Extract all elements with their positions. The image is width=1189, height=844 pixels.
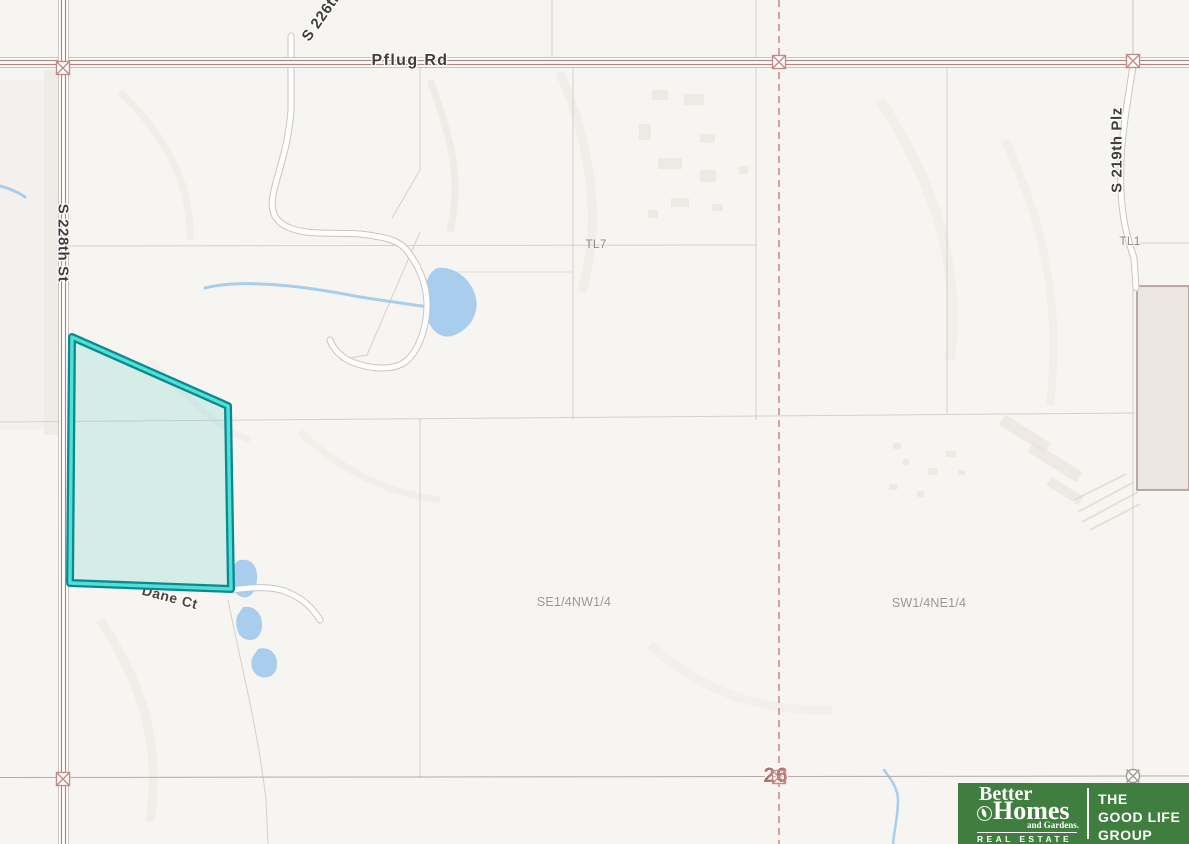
quarter-section-label-sw: SW1/4NE1/4 [892, 596, 966, 610]
quarter-section-label-se: SE1/4NW1/4 [537, 595, 611, 609]
map-canvas[interactable]: Dane Ct 26 Pflug Rd S 228th St S 226th S… [0, 0, 1189, 844]
bhg-real-estate-text: REAL ESTATE [977, 834, 1072, 844]
tagline-line-3: GROUP [1098, 826, 1180, 844]
road-label-pflug-rd: Pflug Rd [372, 52, 449, 70]
brokerage-logo: Better Homes and Gardens. REAL ESTATE TH… [958, 783, 1189, 844]
tagline-line-1: THE [1098, 790, 1180, 808]
bhg-and-gardens-text: and Gardens. [1027, 820, 1079, 830]
road-label-s-219th-plz: S 219th Plz [1109, 107, 1126, 193]
good-life-group-tagline: THE GOOD LIFE GROUP [1089, 783, 1180, 844]
logo-rule [977, 832, 1077, 833]
tax-lot-label-tl1: TL1 [1119, 234, 1140, 248]
leaf-icon [977, 806, 992, 821]
tagline-line-2: GOOD LIFE [1098, 808, 1180, 826]
highlighted-parcel [70, 337, 231, 589]
road-label-s-228th-st: S 228th St [55, 204, 72, 283]
tax-lot-label-tl7: TL7 [585, 237, 606, 251]
bhg-logo-block: Better Homes and Gardens. REAL ESTATE [958, 783, 1087, 844]
map-overlay-layer [0, 0, 1189, 844]
